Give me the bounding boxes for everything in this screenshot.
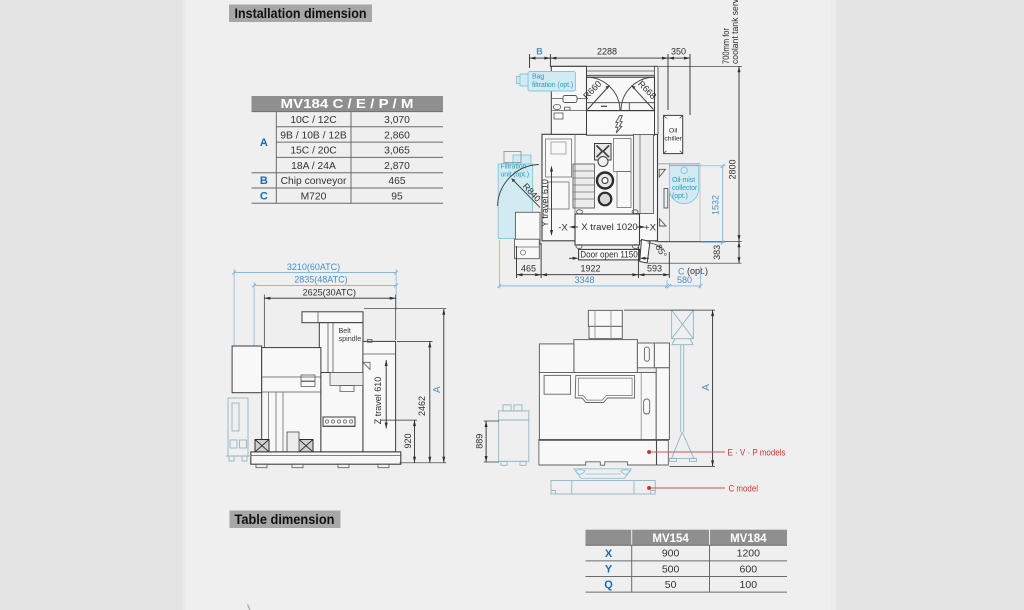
svg-text:Y travel 610: Y travel 610 — [540, 179, 550, 227]
svg-text:580: 580 — [677, 275, 692, 285]
svg-text:MV184 C / E / P / M: MV184 C / E / P / M — [281, 97, 414, 111]
svg-text:3210(60ATC): 3210(60ATC) — [287, 262, 340, 272]
svg-text:10C / 12C: 10C / 12C — [290, 115, 337, 126]
svg-text:95: 95 — [391, 192, 403, 203]
svg-text:Oil: Oil — [669, 128, 678, 135]
svg-text:1200: 1200 — [737, 548, 761, 560]
svg-text:Chip conveyor: Chip conveyor — [281, 176, 347, 187]
svg-text:C: C — [260, 191, 268, 203]
svg-text:Y: Y — [605, 564, 613, 576]
svg-text:9B / 10B / 12B: 9B / 10B / 12B — [280, 130, 347, 141]
svg-text:Table dimension: Table dimension — [235, 512, 335, 528]
svg-text:B: B — [260, 175, 268, 187]
svg-text:spindle: spindle — [339, 334, 362, 343]
svg-text:Bag: Bag — [532, 74, 544, 81]
svg-text:X travel 1020: X travel 1020 — [581, 222, 638, 233]
svg-text:collector: collector — [672, 185, 698, 192]
svg-text:M720: M720 — [301, 192, 327, 203]
svg-text:MV154: MV154 — [652, 533, 689, 545]
svg-text:2288: 2288 — [597, 47, 617, 57]
svg-text:465: 465 — [521, 264, 536, 274]
svg-text:B: B — [536, 47, 543, 57]
svg-text:3348: 3348 — [574, 275, 594, 285]
svg-text:Oil-mist: Oil-mist — [672, 177, 695, 184]
svg-text:(opt.): (opt.) — [672, 193, 688, 200]
svg-text:X: X — [605, 548, 613, 560]
svg-text:15C / 20C: 15C / 20C — [290, 146, 337, 157]
svg-text:500: 500 — [662, 563, 680, 575]
svg-text:coolant tank service: coolant tank service — [730, 0, 740, 64]
svg-text:E · V · P models: E · V · P models — [728, 448, 786, 459]
svg-text:2462: 2462 — [417, 396, 427, 416]
svg-text:-X: -X — [558, 223, 568, 234]
svg-text:Z travel 610: Z travel 610 — [373, 377, 383, 425]
svg-text:2835(48ATC): 2835(48ATC) — [294, 275, 347, 285]
svg-text:350: 350 — [671, 47, 686, 57]
svg-text:Q: Q — [604, 579, 613, 591]
svg-text:900: 900 — [662, 548, 680, 560]
svg-text:465: 465 — [388, 176, 405, 187]
svg-text:920: 920 — [403, 433, 413, 448]
svg-text:A: A — [260, 137, 268, 149]
svg-text:A: A — [432, 386, 443, 393]
svg-text:A: A — [701, 384, 712, 391]
svg-text:18A / 24A: 18A / 24A — [291, 161, 336, 172]
svg-text:Door open 1150: Door open 1150 — [580, 250, 638, 260]
svg-text:chiller: chiller — [664, 136, 682, 143]
svg-text:2800: 2800 — [728, 159, 738, 179]
svg-text:2,870: 2,870 — [384, 161, 410, 172]
svg-text:+X: +X — [644, 223, 657, 234]
svg-text:593: 593 — [647, 264, 662, 274]
svg-text:2,860: 2,860 — [384, 130, 410, 141]
svg-text:1532: 1532 — [711, 195, 721, 215]
svg-text:100: 100 — [740, 579, 758, 591]
svg-text:383: 383 — [712, 245, 722, 260]
svg-text:889: 889 — [475, 434, 485, 449]
svg-text:Filtration: Filtration — [501, 164, 527, 171]
svg-text:filtration (opt.): filtration (opt.) — [532, 82, 573, 89]
svg-text:3,065: 3,065 — [384, 146, 410, 157]
svg-text:3,070: 3,070 — [384, 115, 410, 126]
svg-text:50: 50 — [665, 579, 677, 591]
svg-text:600: 600 — [740, 563, 758, 575]
svg-text:C model: C model — [729, 484, 759, 495]
svg-text:2625(30ATC): 2625(30ATC) — [303, 287, 356, 297]
svg-text:MV184: MV184 — [730, 533, 767, 545]
svg-text:1922: 1922 — [580, 264, 600, 274]
svg-text:Installation dimension: Installation dimension — [235, 6, 367, 22]
